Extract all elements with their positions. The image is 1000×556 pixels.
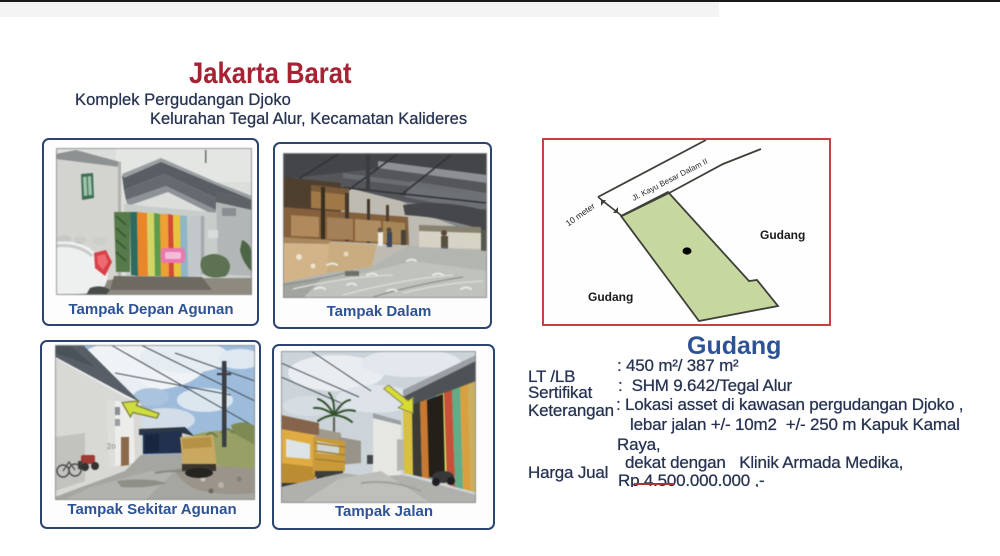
svg-text:2o: 2o bbox=[107, 441, 117, 451]
svg-text:Gudang: Gudang bbox=[760, 228, 805, 242]
svg-text:Gudang: Gudang bbox=[588, 290, 633, 304]
svg-text:10 meter: 10 meter bbox=[564, 201, 597, 229]
